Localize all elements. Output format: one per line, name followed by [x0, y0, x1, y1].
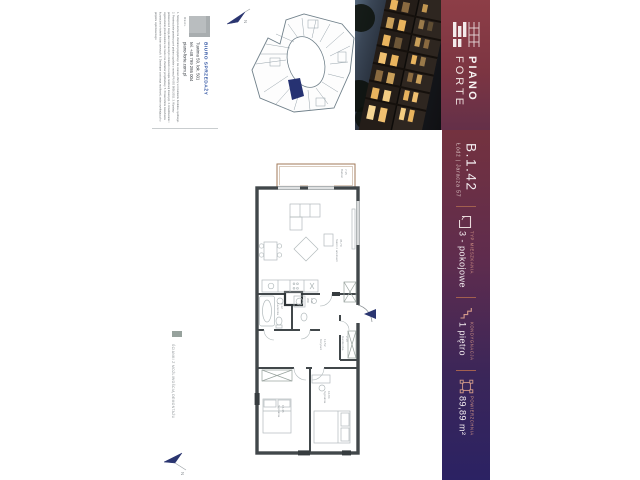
- unit-id: B.1.42: [463, 143, 480, 197]
- brand-line1: PIANO: [465, 56, 478, 108]
- attr-type: TYP MIESZKANIA 3 - pokojowe: [457, 231, 476, 288]
- piano-keys-icon: [451, 18, 481, 50]
- attr-area: POWIERZCHNIA 89,89 m²: [457, 396, 476, 436]
- compass-n-label: N: [180, 472, 185, 475]
- room-label: Balkon: [340, 169, 344, 179]
- building-night-photo: [355, 0, 441, 130]
- site-plan: [246, 12, 358, 116]
- room-label: Garderoba: [341, 336, 345, 351]
- divider: [456, 206, 476, 207]
- attr-floor: KONDYGNACJA 1 piętro: [457, 322, 476, 360]
- attr-floor-value: 1 piętro: [457, 322, 469, 360]
- sales-office-address: Tuwima 59, lok. 501: [194, 42, 201, 95]
- attr-floor-label: KONDYGNACJA: [469, 322, 476, 360]
- disclaimer-line: 2. Powierzchnie pomieszczeń podano zgodn…: [172, 12, 175, 99]
- attr-type-label: TYP MIESZKANIA: [469, 231, 476, 288]
- stairs-icon: [459, 306, 473, 320]
- room-label: Salon z aneksem: [335, 239, 339, 263]
- sales-office-phone: tel. +48 799 286 004: [188, 42, 195, 95]
- divider: [456, 297, 476, 298]
- unit-header: B.1.42 Łódź | Jaracza 57: [453, 143, 480, 197]
- legend-swatch: [172, 331, 182, 337]
- divider-rule: [152, 128, 218, 129]
- room-label: Sypialnia: [277, 405, 281, 418]
- area-icon: [459, 379, 474, 394]
- floor-plan: 7.35 Balkon 35.70 Salon z aneksem 5.12 Ł…: [248, 155, 378, 460]
- divider: [456, 370, 476, 371]
- unit-info-sidebar: B.1.42 Łódź | Jaracza 57 TYP MIESZKANIA …: [442, 130, 490, 480]
- developer-name: REAL: [183, 17, 187, 27]
- room-label: Łazienka: [276, 303, 280, 315]
- room-label: Korytarz: [319, 339, 323, 351]
- sales-office-website[interactable]: piano-forte.com.pl: [181, 42, 188, 95]
- brand-logo-block: PIANO FORTE: [441, 0, 490, 130]
- attr-type-value: 3 - pokojowe: [457, 231, 469, 288]
- door-plan-icon: [459, 215, 473, 229]
- disclaimer-line: 1. Niniejsza karta ma charakter poglądow…: [176, 12, 179, 123]
- unit-location: Łódź | Jaracza 57: [453, 143, 463, 197]
- room-label: WC: [306, 298, 310, 304]
- brand-line2: FORTE: [453, 56, 465, 108]
- building-photo-art: [355, 0, 441, 130]
- north-compass-icon: N: [162, 450, 192, 476]
- sales-office-label: BIURO SPRZEDAŻY: [201, 42, 209, 95]
- attr-area-label: POWIERZCHNIA: [469, 396, 476, 436]
- attr-area-value: 89,89 m²: [457, 396, 469, 436]
- legend-label: ŚCIANKI Z MOŻLIWOŚCIĄ DEMONTAŻU: [171, 344, 175, 418]
- sales-office-block: BIURO SPRZEDAŻY Tuwima 59, lok. 501 tel.…: [181, 42, 209, 95]
- brand-wordmark: PIANO FORTE: [453, 56, 478, 108]
- developer-logo: [189, 16, 210, 37]
- entrance-marker-icon: [364, 309, 376, 319]
- apartment-card: { "brand": { "line1": "PIANO", "line2": …: [0, 0, 640, 480]
- room-label: Sypialnia: [323, 391, 327, 404]
- legal-disclaimers: 1. Niniejsza karta ma charakter poglądow…: [151, 12, 179, 124]
